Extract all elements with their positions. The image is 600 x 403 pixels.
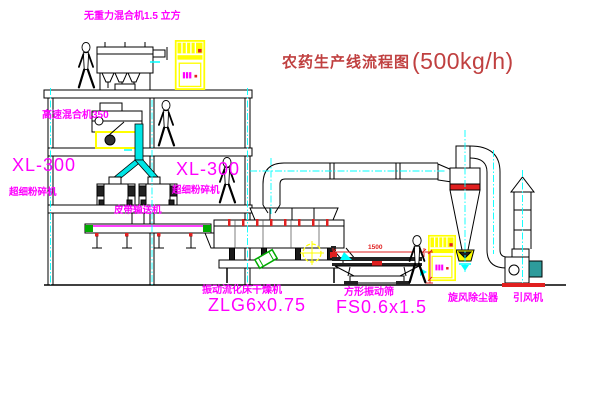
fluid-bed-dryer [214,208,356,283]
title-capacity: (500kg/h) [412,48,514,75]
title-text: 农药生产线流程图 [282,51,410,72]
control-cabinet-upper [176,41,205,89]
pesticide-production-line-drawing: 农药生产线流程图 (500kg/h) 无重力混合机1.5 立方 高速混合机350… [0,0,600,403]
sieve-width-dimension: 1500 [368,244,382,251]
gravity-free-mixer [97,42,167,90]
floor-slab-mid [48,148,252,156]
floor-slab-top [44,90,252,98]
label-gravity-mixer: 无重力混合机1.5 立方 [84,12,181,22]
label-pulverizer-center-name: 超细粉碎机 [172,186,220,196]
person-roof [79,42,94,87]
dryer-body [214,220,344,248]
induced-draft-fan [502,249,545,287]
person-second-floor [159,100,174,145]
mixer-base-frame [96,132,140,148]
drawing-title: 农药生产线流程图 (500kg/h) [282,48,514,75]
label-pulverizer-center-model: XL-300 [176,160,240,178]
label-sieve-model: FS0.6x1.5 [336,298,427,316]
mixer-motor [105,135,115,145]
dryer-exhaust-duct [263,163,438,213]
label-dryer-model: ZLG6x0.75 [208,296,306,314]
fan-motor [529,261,542,277]
label-pulverizer-left-model: XL-300 [12,156,76,174]
label-cyclone: 旋风除尘器 [448,294,498,304]
pulverizer-left [97,177,135,205]
label-fan: 引风机 [513,294,543,304]
label-pulverizer-left-name: 超细粉碎机 [9,188,57,198]
label-belt-conveyor: 皮带输送机 [114,206,162,216]
dryer-hood [250,208,338,220]
dryer-base [219,260,343,268]
label-high-speed-mixer: 高速混合机350 [42,111,109,121]
control-cabinet-lower [429,236,455,280]
fan-base [502,283,545,287]
